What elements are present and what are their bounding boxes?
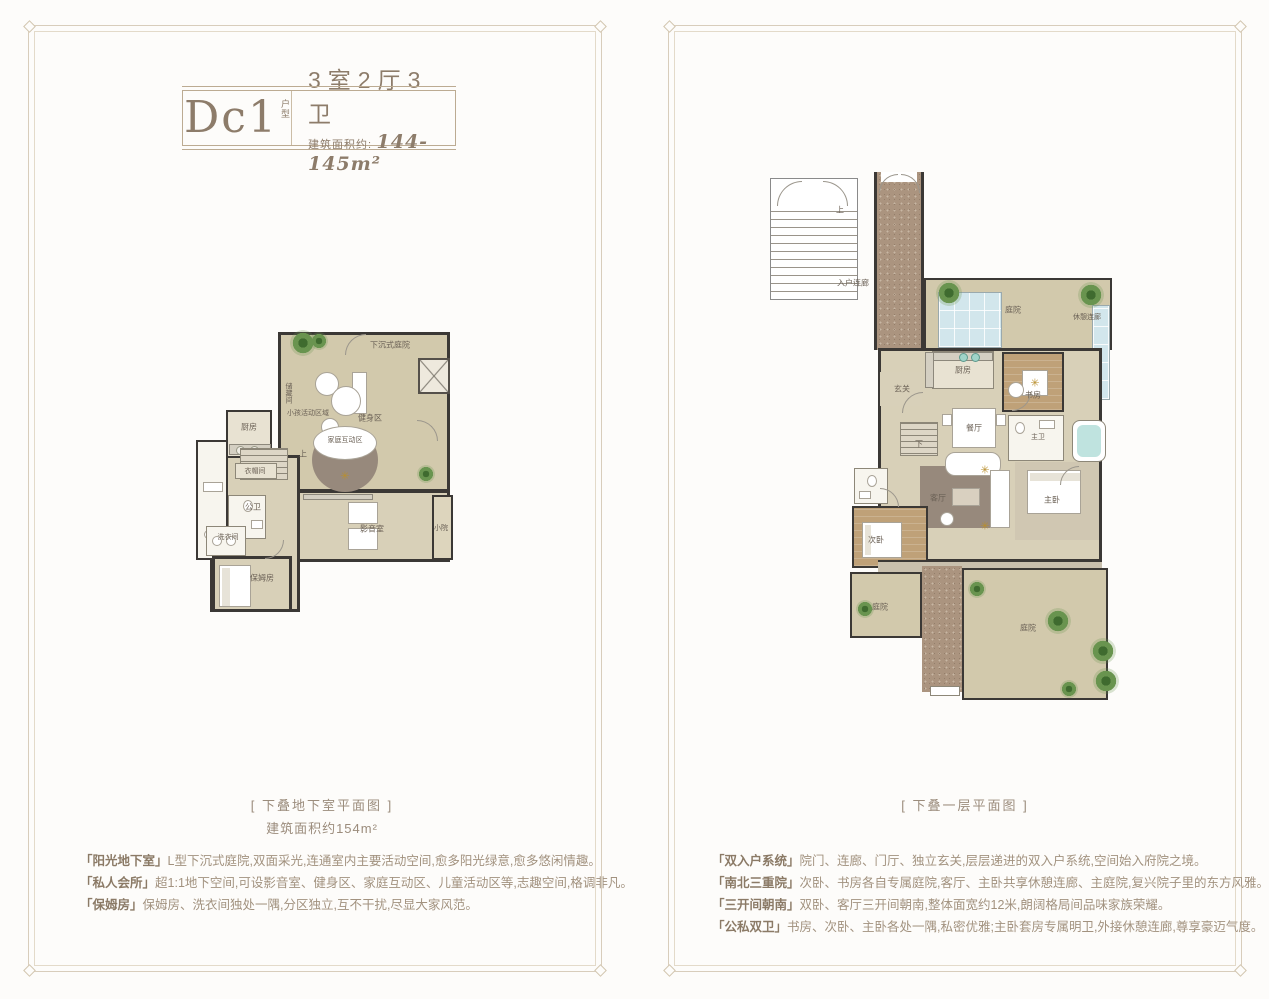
room-label-basement-kitchen: 厨房 xyxy=(241,422,257,433)
nanny-room xyxy=(212,556,292,612)
toilet-icon xyxy=(1015,422,1025,434)
frame-corner-ornament xyxy=(1234,20,1247,33)
stair-direction-down: 下 xyxy=(915,439,923,450)
label-yard-left: 庭院 xyxy=(872,602,888,613)
basement-area-caption: 建筑面积约154m² xyxy=(266,818,378,837)
room-label-family-zone: 家庭互动区 xyxy=(328,435,363,445)
chair-icon xyxy=(942,414,952,426)
feature-item: 「三开间朝南」双卧、客厅三开间朝南,整体面宽约12米,朗阔格局间品味家族荣耀。 xyxy=(712,894,1227,916)
feature-item: 「双入户系统」院门、连廊、门厅、独立玄关,层层递进的双入户系统,空间始入府院之境… xyxy=(712,850,1227,872)
unit-code-box: Dc1 户 型 xyxy=(183,91,292,145)
room-label-small-yard: 小院 xyxy=(434,523,448,533)
room-label-media: 影音室 xyxy=(360,524,384,535)
label-kitchen: 厨房 xyxy=(955,365,971,376)
plant-icon xyxy=(417,465,435,483)
toilet-icon xyxy=(867,475,877,487)
recliner-icon xyxy=(348,502,378,524)
unit-layout: 3室2厅3卫 xyxy=(308,61,455,129)
round-table-icon xyxy=(331,386,361,416)
feature-text: 超1:1地下空间,可设影音室、健身区、家庭互动区、儿童活动区等,志趣空间,格调非… xyxy=(155,876,633,890)
unit-tag-bottom: 型 xyxy=(281,109,290,119)
label-foyer: 玄关 xyxy=(894,384,910,395)
plant-icon xyxy=(1045,608,1071,634)
unit-area: 建筑面积约: 144-145m² xyxy=(308,131,455,175)
kitchen-counter-side xyxy=(925,352,934,388)
feature-title: 「公私双卫」 xyxy=(712,920,787,934)
frame-corner-ornament xyxy=(594,20,607,33)
plant-icon xyxy=(1060,680,1078,698)
gate-door-arc xyxy=(901,174,920,193)
ceiling-fan-icon: ✳ xyxy=(340,470,349,483)
unit-code: Dc1 xyxy=(184,96,278,140)
feature-title: 「保姆房」 xyxy=(80,898,143,912)
room-label-cloakroom: 衣帽间 xyxy=(245,466,266,476)
room-label-public-bath: 公卫 xyxy=(245,502,261,513)
feature-title: 「私人会所」 xyxy=(80,876,155,890)
lightwell-xbox xyxy=(418,358,450,394)
feature-title: 「三开间朝南」 xyxy=(712,898,800,912)
garden-gate xyxy=(930,686,960,696)
plant-icon xyxy=(1078,282,1104,308)
feature-text: 双卧、客厅三开间朝南,整体面宽约12米,朗阔格局间品味家族荣耀。 xyxy=(800,898,1171,912)
feature-title: 「南北三重院」 xyxy=(712,876,800,890)
label-study: 书房 xyxy=(1025,390,1041,401)
bed-icon xyxy=(219,565,251,607)
plant-icon xyxy=(968,580,986,598)
frame-corner-ornament xyxy=(23,964,36,977)
bathtub-icon xyxy=(1072,420,1106,462)
feature-text: 院门、连廊、门厅、独立玄关,层层递进的双入户系统,空间始入府院之境。 xyxy=(800,854,1207,868)
entry-walkway xyxy=(874,172,924,350)
room-label-nanny: 保姆房 xyxy=(250,573,274,584)
basin-icon xyxy=(1039,420,1055,429)
basin-icon xyxy=(859,491,871,499)
frame-corner-ornament xyxy=(594,964,607,977)
bedroom2-room xyxy=(852,506,928,568)
basement-floor-plan: ✳ 下沉式庭院 健身区 小孩活动区域 家庭互动区 储藏间 厨房 衣帽间 上 公卫… xyxy=(195,330,455,620)
label-bedroom2: 次卧 xyxy=(868,535,884,546)
label-courtyard-top: 庭院 xyxy=(1005,305,1021,316)
room-label-laundry: 洗衣间 xyxy=(218,532,239,542)
tv-cabinet xyxy=(303,494,373,500)
room-label-storage: 储藏间 xyxy=(283,383,293,404)
frame-corner-ornament xyxy=(1234,964,1247,977)
stool-icon xyxy=(940,512,954,526)
basement-caption: [ 下叠地下室平面图 ] xyxy=(251,795,393,814)
sink-icon xyxy=(971,353,980,362)
unit-info-box: 3室2厅3卫 建筑面积约: 144-145m² xyxy=(292,91,455,145)
plant-icon xyxy=(1090,638,1116,664)
coffee-table-icon xyxy=(952,488,980,506)
stair-direction-up: 上 xyxy=(836,205,844,216)
room-label-kids-zone: 小孩活动区域 xyxy=(287,408,329,418)
bathtub-water xyxy=(1077,425,1101,457)
label-living: 客厅 xyxy=(930,493,946,504)
label-master-bedroom: 主卧 xyxy=(1044,495,1060,506)
plant-icon xyxy=(936,280,962,306)
label-dining: 餐厅 xyxy=(966,423,982,434)
feature-item: 「保姆房」保姆房、洗衣间独处一隅,分区独立,互不干扰,尽显大家风范。 xyxy=(80,894,570,916)
ceiling-fan-icon: ✳ xyxy=(1030,377,1039,390)
feature-text: 书房、次卧、主卧各处一隅,私密优雅;主卧套房专属明卫,外接休憩连廊,尊享豪迈气度… xyxy=(787,920,1263,934)
sink-icon xyxy=(959,353,968,362)
unit-tag: 户 型 xyxy=(281,99,290,119)
label-master-bath: 主卫 xyxy=(1031,432,1045,442)
first-floor-feature-list: 「双入户系统」院门、连廊、门厅、独立玄关,层层递进的双入户系统,空间始入府院之境… xyxy=(712,850,1227,938)
unit-area-value: 144-145m² xyxy=(308,131,428,175)
feature-text: 次卧、书房各自专属庭院,客厅、主卧共享休憩连廊、主庭院,复兴院子里的东方风雅。 xyxy=(800,876,1269,890)
ceiling-fan-icon: ✳ xyxy=(980,520,989,533)
frame-corner-ornament xyxy=(663,964,676,977)
room-label-sunken-courtyard: 下沉式庭院 xyxy=(370,340,410,351)
basin-icon xyxy=(251,520,263,529)
side-sofa-icon xyxy=(990,470,1010,528)
unit-title-block: Dc1 户 型 3室2厅3卫 建筑面积约: 144-145m² xyxy=(182,90,456,146)
sink-counter xyxy=(203,482,223,492)
feature-item: 「阳光地下室」L型下沉式庭院,双面采光,连通室内主要活动空间,愈多阳光绿意,愈多… xyxy=(80,850,570,872)
feature-title: 「阳光地下室」 xyxy=(80,854,168,868)
ceiling-fan-icon: ✳ xyxy=(980,464,989,477)
feature-text: L型下沉式庭院,双面采光,连通室内主要活动空间,愈多阳光绿意,愈多悠闲情趣。 xyxy=(168,854,601,868)
first-floor-caption: [ 下叠一层平面图 ] xyxy=(901,795,1028,814)
basement-feature-list: 「阳光地下室」L型下沉式庭院,双面采光,连通室内主要活动空间,愈多阳光绿意,愈多… xyxy=(80,850,570,916)
feature-item: 「公私双卫」书房、次卧、主卧各处一隅,私密优雅;主卧套房专属明卫,外接休憩连廊,… xyxy=(712,916,1227,938)
plant-icon xyxy=(310,332,328,350)
stair-direction-up: 上 xyxy=(299,449,307,460)
feature-title: 「双入户系统」 xyxy=(712,854,800,868)
unit-tag-top: 户 xyxy=(281,99,290,109)
room-label-gym: 健身区 xyxy=(358,413,382,424)
label-rest-corridor: 休憩连廊 xyxy=(1073,312,1101,322)
chair-icon xyxy=(996,414,1006,426)
feature-text: 保姆房、洗衣间独处一隅,分区独立,互不干扰,尽显大家风范。 xyxy=(143,898,478,912)
plant-icon xyxy=(1093,668,1119,694)
label-yard-main: 庭院 xyxy=(1020,623,1036,634)
feature-item: 「私人会所」超1:1地下空间,可设影音室、健身区、家庭互动区、儿童活动区等,志趣… xyxy=(80,872,570,894)
first-floor-plan: 上 入户连廊 庭院 休憩连廊 ✳ ✳ ✳ xyxy=(760,170,1120,715)
garden-path xyxy=(922,566,962,692)
unit-area-label: 建筑面积约: xyxy=(308,139,372,151)
pillow-icon xyxy=(222,568,230,606)
label-entry-corridor: 入户连廊 xyxy=(837,278,869,289)
feature-item: 「南北三重院」次卧、书房各自专属庭院,客厅、主卧共享休憩连廊、主庭院,复兴院子里… xyxy=(712,872,1227,894)
